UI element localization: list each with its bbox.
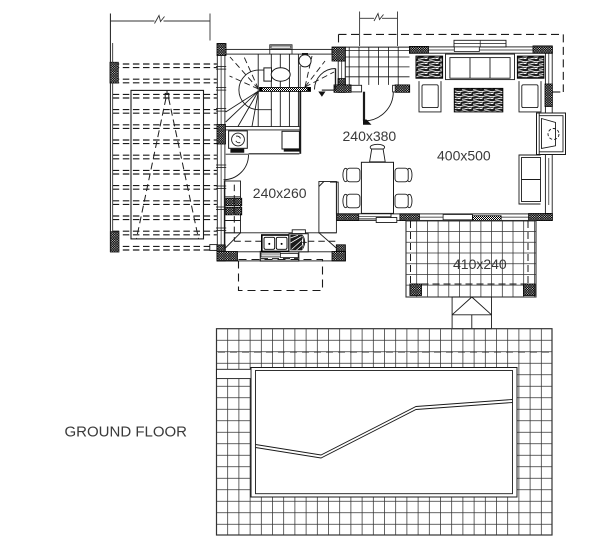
svg-text:410x240: 410x240 — [453, 256, 507, 272]
svg-text:GROUND FLOOR: GROUND FLOOR — [65, 424, 188, 441]
svg-text:240x380: 240x380 — [343, 128, 397, 144]
svg-text:400x500: 400x500 — [437, 148, 491, 164]
svg-text:240x260: 240x260 — [253, 185, 307, 201]
